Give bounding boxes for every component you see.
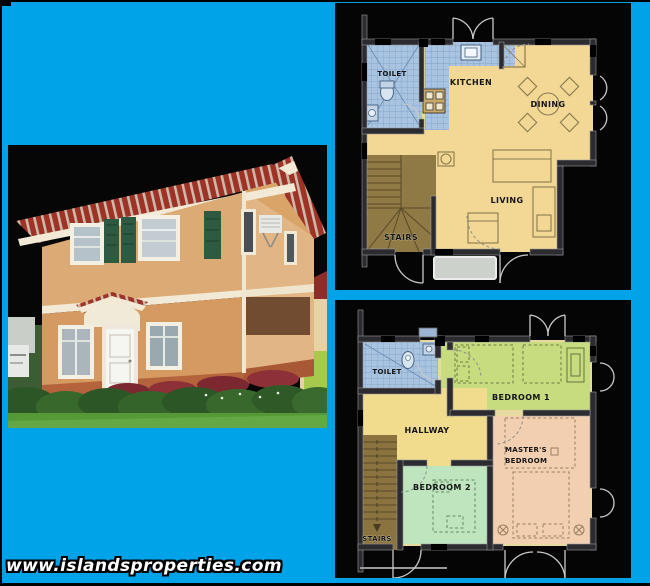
toilet-room <box>366 42 422 128</box>
room-label-toilet-2f: TOILET <box>372 368 401 376</box>
second-floor-plan-art: TOILET BEDROOM 1 HALLWAY MASTER'S BEDROO… <box>335 300 631 578</box>
ground-floor-plan-art: TOILET KITCHEN DINING LIVING STAIRS <box>335 3 631 290</box>
room-label-kitchen: KITCHEN <box>450 78 492 87</box>
stairs-area <box>358 435 397 550</box>
room-label-bedroom2: BEDROOM 2 <box>413 483 471 492</box>
second-floor-plan: TOILET BEDROOM 1 HALLWAY MASTER'S BEDROO… <box>335 300 631 578</box>
room-label-toilet: TOILET <box>377 70 406 78</box>
toilet-window <box>419 328 437 337</box>
room-label-master-line1: MASTER'S <box>505 446 547 454</box>
background-left <box>8 317 42 397</box>
corner-mark <box>2 2 11 6</box>
room-label-hallway: HALLWAY <box>405 426 450 435</box>
room-label-bedroom1: BEDROOM 1 <box>492 393 550 402</box>
room-label-master-line2: BEDROOM <box>505 457 547 465</box>
property-listing-image: TOILET KITCHEN DINING LIVING STAIRS <box>0 0 650 586</box>
toilet-room <box>363 342 438 388</box>
room-label-stairs: STAIRS <box>384 233 418 242</box>
room-label-dining: DINING <box>531 100 566 109</box>
room-label-living: LIVING <box>491 196 524 205</box>
stove <box>423 89 445 113</box>
side-porch-shadow <box>246 297 310 335</box>
watermark-url: www.islandsproperties.com <box>6 556 282 576</box>
ground-floor-plan: TOILET KITCHEN DINING LIVING STAIRS <box>335 3 631 290</box>
room-label-stairs-2f: STAIRS <box>362 535 392 543</box>
house-photo-art <box>8 145 327 428</box>
house-photo <box>8 145 327 428</box>
front-door <box>102 325 138 391</box>
doormat <box>434 257 496 279</box>
